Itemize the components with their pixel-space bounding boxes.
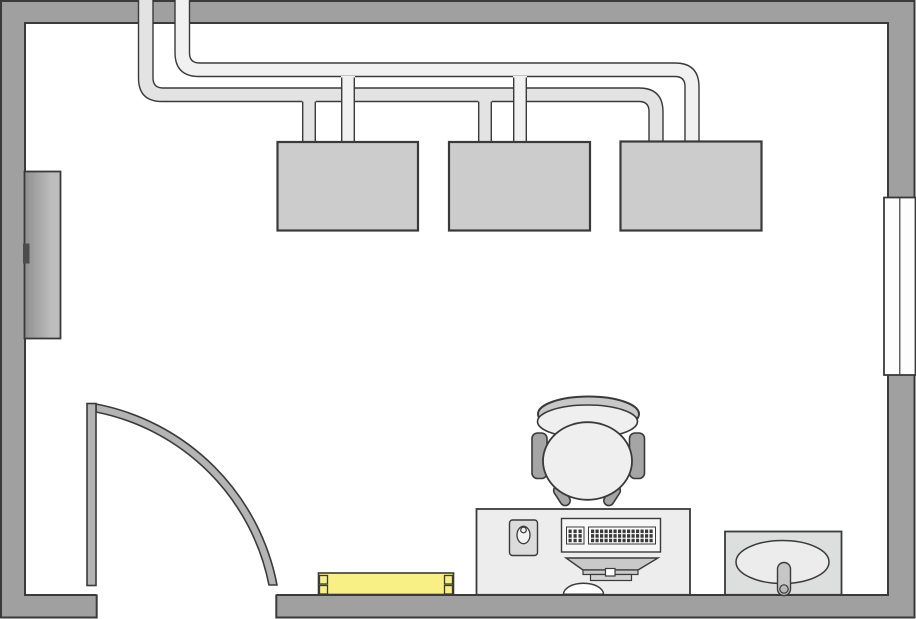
heater-tab [320, 576, 328, 585]
hvac-unit-3[interactable] [621, 142, 762, 231]
duct-drop [513, 76, 527, 142]
office-chair[interactable] [532, 397, 645, 508]
sink-unit[interactable] [725, 532, 842, 596]
heater-tab [445, 586, 453, 595]
heater-tab [320, 586, 328, 595]
floor-plan-canvas [0, 0, 916, 619]
hvac-unit-1[interactable] [278, 142, 419, 231]
hvac-unit-2[interactable] [449, 142, 590, 231]
door-leaf [87, 404, 96, 586]
door-opening [97, 593, 277, 619]
door-swing-arc [96, 404, 277, 585]
keypad-keys [569, 531, 583, 540]
baseboard-heater[interactable] [319, 573, 454, 595]
heater-body [319, 573, 454, 595]
wall-cabinet[interactable] [23, 172, 61, 339]
heater-tab [445, 576, 453, 585]
monitor-notch [606, 569, 616, 577]
cabinet-handle [23, 244, 30, 264]
keyboard[interactable] [562, 519, 661, 553]
computer-desk[interactable] [477, 509, 691, 595]
window[interactable] [884, 198, 916, 376]
duct-drop [302, 100, 316, 142]
cabinet-body [25, 172, 61, 339]
swing-door[interactable] [87, 404, 277, 586]
mouse-pad[interactable] [510, 520, 538, 556]
faucet-knob [780, 585, 788, 593]
chair-seat [543, 422, 632, 500]
duct-drop [478, 100, 492, 142]
mouse [517, 526, 530, 543]
duct-drop [341, 76, 355, 142]
